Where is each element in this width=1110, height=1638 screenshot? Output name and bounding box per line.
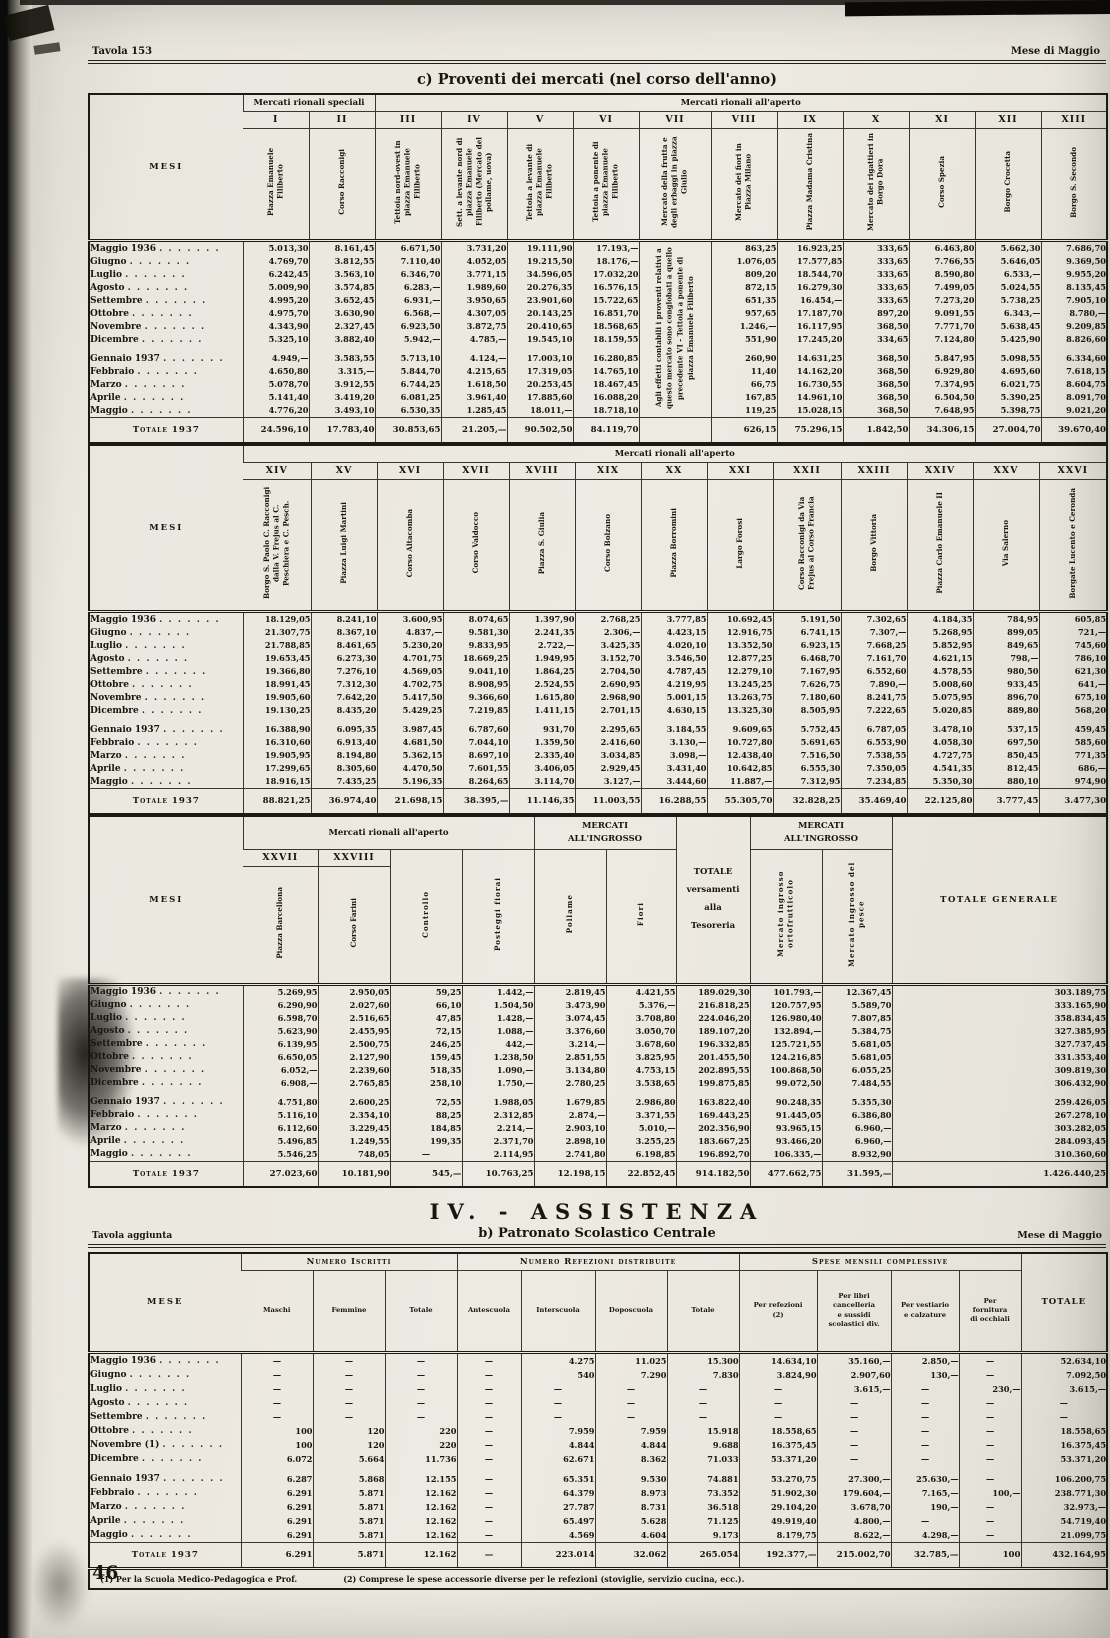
table-row: Luglio21.788,858.461,655.230,209.833,952… — [89, 639, 1107, 652]
value-cell: 36.518 — [667, 1500, 739, 1514]
value-cell: 9.688 — [667, 1438, 739, 1452]
mese-label: Mese di Maggio — [1011, 46, 1100, 57]
value-cell: 3.961,40 — [441, 391, 507, 404]
value-cell: 5.230,20 — [377, 639, 443, 652]
value-cell: 5.844,70 — [375, 365, 441, 378]
total-cell: 22.125,80 — [907, 789, 973, 815]
value-cell: 2.306,— — [575, 626, 641, 639]
value-cell: 224.046,20 — [676, 1012, 750, 1025]
value-cell: 17.187,70 — [777, 307, 843, 320]
value-cell: 230,— — [959, 1382, 1021, 1396]
value-cell: 6.021,75 — [975, 378, 1041, 391]
column-header: Per fornitura di occhiali — [959, 1270, 1021, 1352]
value-cell: 2.524,55 — [509, 678, 575, 691]
value-cell: 5.623,90 — [243, 1025, 318, 1038]
column-header: XXIV — [907, 463, 973, 480]
table-row: Maggio 19365.013,308.161,456.671,503.731… — [89, 241, 1107, 256]
table-title: c) Proventi dei mercati (nel corso dell'… — [88, 71, 1106, 88]
value-cell: — — [241, 1382, 313, 1396]
value-cell: 4.569,05 — [377, 665, 443, 678]
value-cell: 4.275 — [521, 1352, 595, 1368]
value-cell: 2.239,60 — [318, 1064, 390, 1077]
value-cell: 6.908,— — [243, 1077, 318, 1090]
section-iv-subheader: Tavola aggiunta b) Patronato Scolastico … — [88, 1226, 1106, 1241]
value-cell: 2.500,75 — [318, 1038, 390, 1051]
value-cell: 6.287 — [241, 1472, 313, 1486]
value-cell: 7.538,55 — [841, 749, 907, 762]
total-cell: 38.395,— — [443, 789, 509, 815]
value-cell: 6.291 — [241, 1486, 313, 1500]
value-cell: 896,70 — [973, 691, 1039, 704]
value-cell: 9.369,50 — [1041, 255, 1107, 268]
value-cell: 18.669,25 — [443, 652, 509, 665]
value-cell: 9.609,65 — [707, 723, 773, 736]
value-cell: — — [457, 1514, 521, 1528]
value-cell: 18.467,45 — [573, 378, 639, 391]
value-cell: 9.366,60 — [443, 691, 509, 704]
value-cell: 90.248,35 — [750, 1096, 822, 1109]
value-cell: — — [385, 1396, 457, 1410]
column-header: Piazza Emanuele Filiberto — [243, 129, 309, 241]
total-cell: 12.198,15 — [534, 1161, 606, 1187]
vertical-label: Corso Racconigi da Via Frejus al Corso F… — [797, 484, 816, 602]
table-row: Luglio6.598,702.516,6547,851.428,—3.074,… — [89, 1012, 1107, 1025]
value-cell: 6.291 — [241, 1500, 313, 1514]
table-row: Agosto———————————— — [89, 1396, 1107, 1410]
value-cell: 7.165,— — [891, 1486, 959, 1500]
vertical-label: Piazza S. Giulia — [537, 512, 547, 574]
value-cell: 4.776,20 — [243, 404, 309, 418]
value-cell: 2.027,60 — [318, 999, 390, 1012]
value-cell: 7.668,25 — [841, 639, 907, 652]
value-cell: 4.769,70 — [243, 255, 309, 268]
value-cell: 5.752,45 — [773, 723, 841, 736]
value-cell: 2.722,— — [509, 639, 575, 652]
table-row: Gennaio 19374.751,802.600,2572,551.988,0… — [89, 1096, 1107, 1109]
value-cell: 771,35 — [1039, 749, 1107, 762]
value-cell: 7.435,25 — [311, 775, 377, 789]
value-cell: 12.916,75 — [707, 626, 773, 639]
value-cell: 100.868,50 — [750, 1064, 822, 1077]
column-header: II — [309, 112, 375, 129]
value-cell: 368,50 — [843, 391, 909, 404]
value-cell: 4.975,70 — [243, 307, 309, 320]
value-cell: 53.371,20 — [739, 1452, 817, 1466]
vertical-label: Corso Bolzano — [603, 514, 613, 572]
row-label: Dicembre — [89, 1452, 241, 1466]
total-cell: — — [457, 1542, 521, 1568]
column-header: Numero Iscritti — [241, 1253, 457, 1271]
value-cell: 6.929,80 — [909, 365, 975, 378]
table-row: Agosto19.653,456.273,304.701,7518.669,25… — [89, 652, 1107, 665]
value-cell: 7.890,— — [841, 678, 907, 691]
row-label: Dicembre — [89, 704, 243, 717]
column-header: Corso Altacomba — [377, 480, 443, 612]
value-cell: 12.877,25 — [707, 652, 773, 665]
table-row: Settembre4.995,203.652,456.931,—3.950,65… — [89, 294, 1107, 307]
value-cell: 29.104,20 — [739, 1500, 817, 1514]
value-cell: 3.777,85 — [641, 612, 707, 627]
value-cell: 106.335,— — [750, 1148, 822, 1162]
row-label: Agosto — [89, 1396, 241, 1410]
value-cell: 3.824,90 — [739, 1368, 817, 1382]
value-cell: — — [241, 1396, 313, 1410]
table-cell: (1) Per la Scuola Medico-Pedagogica e Pr… — [89, 1568, 1107, 1589]
vertical-label: Tettoia a ponente di piazza Emanuele Fil… — [591, 133, 620, 231]
column-header: Piazza S. Giulia — [509, 480, 575, 612]
value-cell: 284.093,45 — [892, 1135, 1107, 1148]
value-cell: 3.615,— — [817, 1382, 891, 1396]
value-cell: 6.291 — [241, 1514, 313, 1528]
total-cell: 27.023,60 — [243, 1161, 318, 1187]
value-cell: — — [739, 1382, 817, 1396]
value-cell: 2.874,— — [534, 1109, 606, 1122]
value-cell: 3.615,— — [1021, 1382, 1107, 1396]
value-cell: 980,50 — [973, 665, 1039, 678]
table-row: Aprile6.2915.87112.162—65.4975.62871.125… — [89, 1514, 1107, 1528]
row-label: Ottobre — [89, 307, 243, 320]
value-cell: 3.731,20 — [441, 241, 507, 256]
total-cell: 5.871 — [313, 1542, 385, 1568]
table-row: Aprile5.496,851.249,55199,352.371,702.89… — [89, 1135, 1107, 1148]
value-cell: 20.410,65 — [507, 320, 573, 333]
value-cell: 5.078,70 — [243, 378, 309, 391]
value-cell: 2.127,90 — [318, 1051, 390, 1064]
thumb-smudge-artifact — [58, 978, 136, 1146]
value-cell: 3.371,55 — [606, 1109, 676, 1122]
column-header: Corso Farini — [318, 866, 390, 984]
column-header: Antescuola — [457, 1270, 521, 1352]
row-label: Luglio — [89, 639, 243, 652]
value-cell: 6.552,60 — [841, 665, 907, 678]
value-cell: 18.558,65 — [1021, 1424, 1107, 1438]
total-cell: 21.698,15 — [377, 789, 443, 815]
value-cell: — — [959, 1424, 1021, 1438]
value-cell: 196.332,85 — [676, 1038, 750, 1051]
row-label: Luglio — [89, 1382, 241, 1396]
total-label: Totale 1937 — [89, 789, 243, 815]
value-cell: 8.932,90 — [822, 1148, 892, 1162]
value-cell: 880,10 — [973, 775, 1039, 789]
mese-label-2: Mese di Maggio — [1017, 1230, 1102, 1241]
value-cell: 1.076,05 — [711, 255, 777, 268]
value-cell: 3.825,95 — [606, 1051, 676, 1064]
value-cell: 19.545,10 — [507, 333, 573, 346]
value-cell: 12.155 — [385, 1472, 457, 1486]
value-cell: 540 — [521, 1368, 595, 1382]
value-cell: 8.135,45 — [1041, 281, 1107, 294]
value-cell: — — [959, 1500, 1021, 1514]
row-label: Maggio — [89, 775, 243, 789]
value-cell: 62.671 — [521, 1452, 595, 1466]
value-cell: 27.300,— — [817, 1472, 891, 1486]
value-cell: 17.885,60 — [507, 391, 573, 404]
value-cell: 7.959 — [521, 1424, 595, 1438]
value-cell: 5.376,— — [606, 999, 676, 1012]
vertical-label: Fiori — [636, 902, 646, 926]
value-cell: 899,05 — [973, 626, 1039, 639]
value-cell: 2.312,85 — [462, 1109, 534, 1122]
value-cell: 3.214,— — [534, 1038, 606, 1051]
value-cell: 120 — [313, 1438, 385, 1452]
value-cell: 1.428,— — [462, 1012, 534, 1025]
tavola-label: Tavola 153 — [92, 46, 152, 57]
value-cell: 17.193,— — [573, 241, 639, 256]
value-cell: 310.360,60 — [892, 1148, 1107, 1162]
value-cell: 1.090,— — [462, 1064, 534, 1077]
table-row: Giugno21.307,758.367,104.837,—9.581,302.… — [89, 626, 1107, 639]
value-cell: 16.730,55 — [777, 378, 843, 391]
vertical-label: Piazza Borromini — [669, 508, 679, 578]
value-cell: 12.279,10 — [707, 665, 773, 678]
value-cell: 3.950,65 — [441, 294, 507, 307]
value-cell: 2.768,25 — [575, 612, 641, 627]
value-cell: 130,— — [891, 1368, 959, 1382]
double-rule — [88, 1244, 1106, 1248]
value-cell: — — [891, 1382, 959, 1396]
value-cell: 2.704,50 — [575, 665, 641, 678]
value-cell: 5.362,15 — [377, 749, 443, 762]
value-cell: 7.642,20 — [311, 691, 377, 704]
value-cell: 4.844 — [521, 1438, 595, 1452]
value-cell: 850,45 — [973, 749, 1039, 762]
value-cell: 66,75 — [711, 378, 777, 391]
value-cell: 13.352,50 — [707, 639, 773, 652]
row-label: Gennaio 1937 — [89, 1472, 241, 1486]
value-cell: — — [959, 1452, 1021, 1466]
value-cell: 15.722,65 — [573, 294, 639, 307]
value-cell: — — [959, 1352, 1021, 1368]
value-cell: 605,85 — [1039, 612, 1107, 627]
table-row: Marzo19.905,958.194,805.362,158.697,102.… — [89, 749, 1107, 762]
value-cell: — — [959, 1368, 1021, 1382]
row-label: Giugno — [89, 626, 243, 639]
total-cell: 11.003,55 — [575, 789, 641, 815]
value-cell: 5.738,25 — [975, 294, 1041, 307]
value-cell: — — [457, 1368, 521, 1382]
table-proventi-mercati-3: MESIMercati rionali all'apertoMERCATI AL… — [88, 815, 1108, 1188]
value-cell: 5.646,05 — [975, 255, 1041, 268]
value-cell: 7.626,75 — [773, 678, 841, 691]
value-cell: 1.359,50 — [509, 736, 575, 749]
table-row: Dicembre6.908,—2.765,85258,101.750,—2.78… — [89, 1077, 1107, 1090]
value-cell: 5.325,10 — [243, 333, 309, 346]
value-cell: 7.686,70 — [1041, 241, 1107, 256]
value-cell: 6.052,— — [243, 1064, 318, 1077]
value-cell: 3.152,70 — [575, 652, 641, 665]
value-cell: — — [1021, 1410, 1107, 1424]
value-cell: 7.273,20 — [909, 294, 975, 307]
value-cell: 13.263,75 — [707, 691, 773, 704]
value-cell: — — [739, 1410, 817, 1424]
column-header: IX — [777, 112, 843, 129]
value-cell: 7.312,95 — [773, 775, 841, 789]
value-cell: 12.162 — [385, 1486, 457, 1500]
value-cell: 183.667,25 — [676, 1135, 750, 1148]
total-cell: 11.146,35 — [509, 789, 575, 815]
value-cell: 35.160,— — [817, 1352, 891, 1368]
value-cell: 7.648,95 — [909, 404, 975, 418]
total-cell: 84.119,70 — [573, 418, 639, 444]
value-cell: 10.727,80 — [707, 736, 773, 749]
value-cell: 5.116,10 — [243, 1109, 318, 1122]
value-cell: — — [667, 1410, 739, 1424]
column-header: IV — [441, 112, 507, 129]
scan-corner-artifact — [845, 0, 1110, 16]
vertical-label: Controllo — [421, 891, 431, 938]
value-cell: 7.312,30 — [311, 678, 377, 691]
column-header: Largo Forosi — [707, 480, 773, 612]
total-row: Totale 193788.821,2536.974,4021.698,1538… — [89, 789, 1107, 815]
value-cell: — — [1021, 1396, 1107, 1410]
value-cell: 1.442,— — [462, 984, 534, 999]
value-cell: 189.107,20 — [676, 1025, 750, 1038]
value-cell: 8.826,60 — [1041, 333, 1107, 346]
total-cell: 21.205,— — [441, 418, 507, 444]
column-header: Borgo Crocetta — [975, 129, 1041, 241]
total-cell: 88.821,25 — [243, 789, 311, 815]
value-cell: 18.159,55 — [573, 333, 639, 346]
value-cell: 18.011,— — [507, 404, 573, 418]
value-cell: 6.960,— — [822, 1135, 892, 1148]
value-cell: 9.955,20 — [1041, 268, 1107, 281]
column-header: XXV — [973, 463, 1039, 480]
value-cell: 6.598,70 — [243, 1012, 318, 1025]
value-cell: 333.165,90 — [892, 999, 1107, 1012]
value-cell: 4.701,75 — [377, 652, 443, 665]
value-cell: 3.678,70 — [817, 1500, 891, 1514]
total-cell: 10.763,25 — [462, 1161, 534, 1187]
row-label: Novembre (1) — [89, 1438, 241, 1452]
value-cell: — — [891, 1514, 959, 1528]
row-label: Febbraio — [89, 736, 243, 749]
column-header: Mercato dei fiori in Piazza Milano — [711, 129, 777, 241]
value-cell: 11.025 — [595, 1352, 667, 1368]
value-cell: 5.546,25 — [243, 1148, 318, 1162]
value-cell: 784,95 — [973, 612, 1039, 627]
value-cell: 6.334,60 — [1041, 352, 1107, 365]
column-header: Numero Refezioni distribuite — [457, 1253, 739, 1271]
value-cell: 1.750,— — [462, 1077, 534, 1090]
column-header: XXVI — [1039, 463, 1107, 480]
value-cell: 5.664 — [313, 1452, 385, 1466]
value-cell: 7.771,70 — [909, 320, 975, 333]
value-cell: 196.892,70 — [676, 1148, 750, 1162]
vertical-label: Piazza Luigi Martini — [339, 502, 349, 584]
value-cell: — — [959, 1472, 1021, 1486]
value-cell: 6.504,50 — [909, 391, 975, 404]
value-cell: 8.179,75 — [739, 1528, 817, 1543]
value-cell: 368,50 — [843, 352, 909, 365]
value-cell: 4.800,— — [817, 1514, 891, 1528]
vertical-label: Mercato della frutta e degli erbaggi in … — [660, 133, 689, 231]
value-cell: 8.362 — [595, 1452, 667, 1466]
value-cell: 7.307,— — [841, 626, 907, 639]
value-cell: 6.787,60 — [443, 723, 509, 736]
value-cell: 16.454,— — [777, 294, 843, 307]
row-label: Gennaio 1937 — [89, 352, 243, 365]
value-cell: 17.577,85 — [777, 255, 843, 268]
value-cell: 5.098,55 — [975, 352, 1041, 365]
column-header: Sett. a levante nord di piazza Emanuele … — [441, 129, 507, 241]
value-cell: 93.965,15 — [750, 1122, 822, 1135]
value-cell: 6.533,— — [975, 268, 1041, 281]
column-header: V — [507, 112, 573, 129]
value-cell: 5.350,30 — [907, 775, 973, 789]
value-cell: — — [457, 1410, 521, 1424]
table-row: Giugno6.290,902.027,6066,101.504,503.473… — [89, 999, 1107, 1012]
value-cell: 3.912,55 — [309, 378, 375, 391]
tavola-aggiunta-label: Tavola aggiunta — [92, 1231, 172, 1241]
value-cell: 18.129,05 — [243, 612, 311, 627]
value-cell: 4.578,55 — [907, 665, 973, 678]
value-cell: 19.905,60 — [243, 691, 311, 704]
value-cell: 13.325,30 — [707, 704, 773, 717]
footnote-2: (2) Comprese le spese accessorie diverse… — [343, 1574, 744, 1584]
column-header: Fiori — [606, 849, 676, 984]
value-cell: 5.713,10 — [375, 352, 441, 365]
total-cell: 22.852,45 — [606, 1161, 676, 1187]
value-cell: 34.596,05 — [507, 268, 573, 281]
total-cell: 12.162 — [385, 1542, 457, 1568]
value-cell: 18.991,45 — [243, 678, 311, 691]
column-header: XXVII — [243, 849, 318, 866]
value-cell: 1.864,25 — [509, 665, 575, 678]
value-cell: 7.484,55 — [822, 1077, 892, 1090]
value-cell: 2.354,10 — [318, 1109, 390, 1122]
value-cell: 4.995,20 — [243, 294, 309, 307]
total-cell: 265.054 — [667, 1542, 739, 1568]
value-cell: 23.901,60 — [507, 294, 573, 307]
column-header: VI — [573, 112, 639, 129]
value-cell: 5.496,85 — [243, 1135, 318, 1148]
total-cell: 3.477,30 — [1039, 789, 1107, 815]
value-cell: 15.300 — [667, 1352, 739, 1368]
vertical-label: Corso Farini — [349, 898, 359, 947]
column-header: Borgo S. Secondo — [1041, 129, 1107, 241]
value-cell: 2.241,35 — [509, 626, 575, 639]
value-cell: 101.793,— — [750, 984, 822, 999]
column-header: Piazza Barcellona — [243, 866, 318, 984]
table-row: Agosto5.009,903.574,856.283,—1.989,6020.… — [89, 281, 1107, 294]
column-header: XII — [975, 112, 1041, 129]
row-label: Gennaio 1937 — [89, 723, 243, 736]
value-cell: 6.555,30 — [773, 762, 841, 775]
value-cell: 5.871 — [313, 1514, 385, 1528]
scanned-document-page: Tavola 153 Mese di Maggio c) Proventi de… — [0, 0, 1110, 1638]
value-cell: — — [385, 1410, 457, 1424]
total-cell: 32.785,— — [891, 1542, 959, 1568]
value-cell: 5.355,30 — [822, 1096, 892, 1109]
value-cell: 863,25 — [711, 241, 777, 256]
value-cell: 3.652,45 — [309, 294, 375, 307]
value-cell: 3.538,65 — [606, 1077, 676, 1090]
vertical-label: Corso Spezia — [937, 156, 947, 208]
table-row: Febbraio6.2915.87112.162—64.3798.97373.3… — [89, 1486, 1107, 1500]
value-cell: 16.375,45 — [739, 1438, 817, 1452]
table-row: Ottobre6.650,052.127,90159,451.238,502.8… — [89, 1051, 1107, 1064]
value-cell: 3.134,80 — [534, 1064, 606, 1077]
value-cell: 5.075,95 — [907, 691, 973, 704]
column-header: Piazza Luigi Martini — [311, 480, 377, 612]
value-cell: 2.214,— — [462, 1122, 534, 1135]
value-cell: — — [667, 1396, 739, 1410]
column-header: Piazza Madama Cristina — [777, 129, 843, 241]
column-header: Borgo S. Paolo C. Racconigi dalla V. Fre… — [243, 480, 311, 612]
value-cell: 4.702,75 — [377, 678, 443, 691]
value-cell: 17.299,65 — [243, 762, 311, 775]
table-row: Ottobre100120220—7.9597.95915.91818.558,… — [89, 1424, 1107, 1438]
